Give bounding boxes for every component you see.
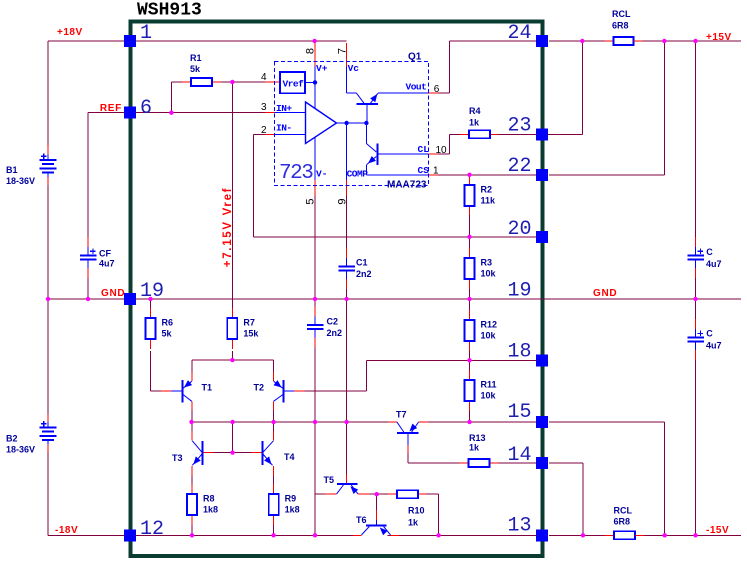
svg-text:R7: R7 <box>243 318 255 328</box>
svg-text:5k: 5k <box>190 64 201 74</box>
svg-text:B2: B2 <box>6 434 18 444</box>
svg-text:T7: T7 <box>396 410 407 420</box>
svg-text:12: 12 <box>140 518 164 541</box>
svg-text:R12: R12 <box>481 320 498 330</box>
svg-text:COMP: COMP <box>347 169 369 180</box>
svg-text:+18V: +18V <box>57 27 83 38</box>
svg-text:11k: 11k <box>481 196 497 206</box>
svg-text:R4: R4 <box>469 106 481 116</box>
svg-text:MAA723: MAA723 <box>387 180 427 191</box>
svg-text:19: 19 <box>140 280 164 303</box>
svg-text:13: 13 <box>507 515 531 538</box>
svg-text:C: C <box>706 329 713 339</box>
svg-text:R10: R10 <box>408 506 425 516</box>
svg-text:1: 1 <box>433 166 439 177</box>
svg-text:723: 723 <box>279 162 313 185</box>
svg-text:R2: R2 <box>481 185 493 195</box>
svg-text:GND: GND <box>593 288 617 299</box>
svg-text:4u7: 4u7 <box>706 259 722 269</box>
svg-text:18: 18 <box>507 341 531 364</box>
svg-text:2n2: 2n2 <box>327 328 343 338</box>
svg-text:V-: V- <box>316 169 327 180</box>
svg-text:7: 7 <box>337 48 349 54</box>
svg-text:Q1: Q1 <box>408 52 422 63</box>
svg-text:10: 10 <box>436 145 448 156</box>
svg-text:CS: CS <box>418 165 430 176</box>
svg-text:RCL: RCL <box>614 506 633 516</box>
svg-text:IN-: IN- <box>276 123 292 134</box>
svg-text:V+: V+ <box>316 63 328 74</box>
svg-text:6: 6 <box>140 97 152 120</box>
svg-text:T1: T1 <box>202 383 213 393</box>
svg-text:B1: B1 <box>6 165 18 175</box>
svg-text:4u7: 4u7 <box>99 259 115 269</box>
svg-text:CL: CL <box>418 144 430 155</box>
svg-text:9: 9 <box>337 198 349 204</box>
svg-text:20: 20 <box>507 218 531 241</box>
svg-text:4u7: 4u7 <box>706 341 722 351</box>
svg-text:1k8: 1k8 <box>203 505 218 515</box>
svg-text:R13: R13 <box>469 433 486 443</box>
svg-text:19: 19 <box>507 280 531 303</box>
svg-text:IN+: IN+ <box>276 103 292 114</box>
svg-text:1k: 1k <box>469 118 480 128</box>
svg-text:T5: T5 <box>324 475 335 485</box>
svg-text:14: 14 <box>507 444 531 467</box>
svg-text:2n2: 2n2 <box>356 269 372 279</box>
svg-text:5k: 5k <box>162 329 173 339</box>
svg-text:GND: GND <box>101 288 125 299</box>
svg-text:T6: T6 <box>356 515 367 525</box>
svg-text:C: C <box>706 247 713 257</box>
svg-text:18-36V: 18-36V <box>6 445 35 455</box>
svg-text:24: 24 <box>507 22 531 45</box>
svg-text:3: 3 <box>261 102 267 113</box>
svg-text:15k: 15k <box>243 329 259 339</box>
svg-text:1: 1 <box>140 22 152 45</box>
svg-text:-18V: -18V <box>55 525 78 536</box>
svg-text:+15V: +15V <box>706 32 732 43</box>
svg-text:R6: R6 <box>162 318 174 328</box>
svg-text:C1: C1 <box>356 257 368 267</box>
svg-text:1k8: 1k8 <box>285 505 300 515</box>
svg-text:Vout: Vout <box>406 82 427 93</box>
svg-text:23: 23 <box>507 115 531 138</box>
svg-text:T2: T2 <box>254 383 265 393</box>
svg-text:15: 15 <box>507 401 531 424</box>
svg-text:10k: 10k <box>481 269 497 279</box>
svg-text:+7.15V Vref: +7.15V Vref <box>222 187 234 267</box>
svg-text:T3: T3 <box>172 453 183 463</box>
svg-text:CF: CF <box>99 248 111 258</box>
svg-text:C2: C2 <box>327 316 339 326</box>
svg-text:6R8: 6R8 <box>614 517 631 527</box>
svg-text:18-36V: 18-36V <box>6 176 35 186</box>
svg-text:REF: REF <box>100 103 122 114</box>
svg-text:10k: 10k <box>481 331 497 341</box>
svg-text:4: 4 <box>261 72 267 83</box>
svg-text:R8: R8 <box>203 494 215 504</box>
svg-text:1k: 1k <box>469 443 480 453</box>
svg-text:RCL: RCL <box>612 9 631 19</box>
svg-text:8: 8 <box>305 48 317 54</box>
svg-text:R1: R1 <box>190 53 202 63</box>
svg-text:6: 6 <box>434 84 440 95</box>
svg-text:Vref: Vref <box>283 79 305 90</box>
svg-text:Vc: Vc <box>348 63 360 74</box>
svg-text:2: 2 <box>261 125 267 136</box>
svg-text:22: 22 <box>507 155 531 178</box>
svg-text:10k: 10k <box>481 391 497 401</box>
svg-text:R11: R11 <box>481 380 497 390</box>
svg-text:R3: R3 <box>481 258 493 268</box>
svg-text:1k: 1k <box>408 518 419 528</box>
svg-text:6R8: 6R8 <box>612 21 629 31</box>
svg-text:-15V: -15V <box>706 525 729 536</box>
svg-text:WSH913: WSH913 <box>137 1 202 21</box>
svg-text:T4: T4 <box>284 452 295 462</box>
svg-text:5: 5 <box>305 198 317 204</box>
svg-text:R9: R9 <box>285 494 297 504</box>
